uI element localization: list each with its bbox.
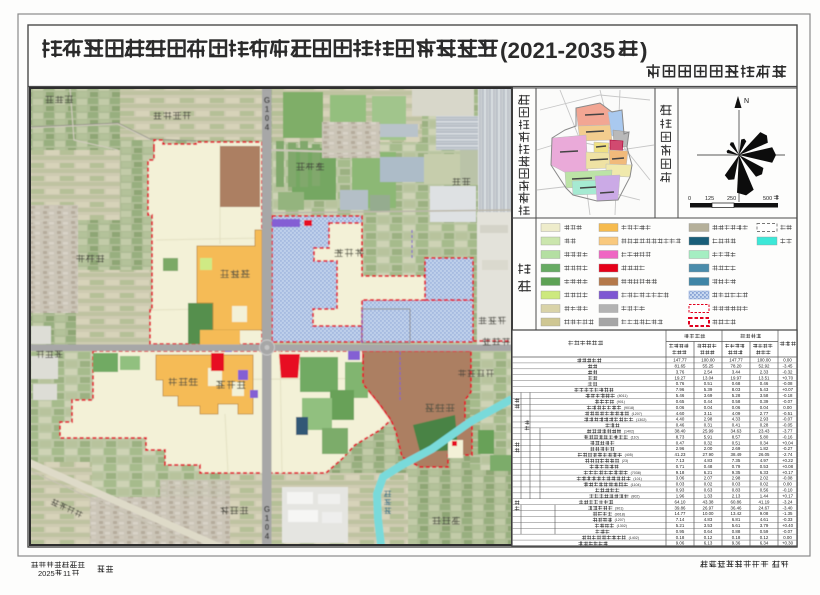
svg-text:36.46: 36.46 [731, 505, 743, 510]
svg-text:38.40: 38.40 [675, 429, 687, 434]
svg-text:0.32: 0.32 [704, 440, 713, 445]
svg-text:(802): (802) [631, 495, 639, 499]
svg-text:-0.18: -0.18 [782, 393, 793, 398]
svg-text:0.34: 0.34 [760, 440, 769, 445]
svg-text:1.44: 1.44 [760, 494, 769, 499]
svg-text:14.77: 14.77 [675, 511, 687, 516]
svg-text:3.11: 3.11 [704, 411, 713, 416]
svg-text:0.79: 0.79 [732, 464, 741, 469]
svg-text:+0.30: +0.30 [782, 541, 794, 546]
svg-text:34.63: 34.63 [731, 429, 743, 434]
svg-text:(1207): (1207) [632, 412, 642, 416]
svg-text:0.03: 0.03 [676, 482, 685, 487]
svg-text:125: 125 [705, 196, 714, 202]
svg-text:5.43: 5.43 [760, 387, 769, 392]
svg-text:0.12: 0.12 [704, 535, 713, 540]
svg-text:-0.10: -0.10 [782, 488, 793, 493]
svg-text:4.83: 4.83 [704, 517, 713, 522]
svg-text:0.28: 0.28 [760, 423, 769, 428]
svg-text:4.83: 4.83 [704, 458, 713, 463]
svg-text:1.82: 1.82 [760, 446, 769, 451]
svg-text:19.27: 19.27 [675, 375, 687, 380]
svg-text:7.13: 7.13 [676, 458, 685, 463]
svg-text:4.97: 4.97 [760, 458, 769, 463]
svg-text:+0.40: +0.40 [782, 523, 794, 528]
svg-text:0.59: 0.59 [760, 529, 769, 534]
svg-text:5.28: 5.28 [732, 393, 741, 398]
svg-text:5.80: 5.80 [760, 434, 769, 439]
svg-text:0.64: 0.64 [704, 529, 713, 534]
svg-text:2.77: 2.77 [760, 411, 769, 416]
svg-text:1.96: 1.96 [676, 494, 685, 499]
svg-text:0.39: 0.39 [760, 399, 769, 404]
svg-text:0.76: 0.76 [676, 381, 685, 386]
svg-text:-0.33: -0.33 [782, 517, 793, 522]
svg-text:39.86: 39.86 [675, 505, 687, 510]
svg-text:5.21: 5.21 [676, 523, 685, 528]
svg-text:0.48: 0.48 [704, 464, 713, 469]
svg-text:6.81: 6.81 [732, 517, 741, 522]
svg-text:0.63: 0.63 [704, 488, 713, 493]
svg-text:-0.51: -0.51 [782, 411, 793, 416]
svg-text:0.56: 0.56 [760, 488, 769, 493]
svg-text:5.39: 5.39 [704, 387, 713, 392]
svg-text:8.57: 8.57 [732, 434, 741, 439]
svg-text:2.07: 2.07 [704, 476, 713, 481]
svg-text:(110): (110) [631, 436, 639, 440]
svg-text:+0.07: +0.07 [782, 387, 794, 392]
svg-text:3.79: 3.79 [760, 523, 769, 528]
svg-text:7.35: 7.35 [732, 458, 741, 463]
svg-text:9.08: 9.08 [760, 511, 769, 516]
svg-text:100.00: 100.00 [757, 358, 771, 363]
svg-text:0.00: 0.00 [783, 482, 792, 487]
svg-text:6.21: 6.21 [704, 470, 713, 475]
svg-text:4.60: 4.60 [676, 411, 685, 416]
svg-text:0.58: 0.58 [732, 399, 741, 404]
svg-text:2025: 2025 [38, 569, 55, 578]
svg-text:0.71: 0.71 [676, 464, 685, 469]
svg-text:26.05: 26.05 [759, 452, 771, 457]
svg-text:100.00: 100.00 [701, 358, 715, 363]
svg-text:19.97: 19.97 [731, 375, 743, 380]
svg-text:55.25: 55.25 [703, 364, 715, 369]
svg-text:0.18: 0.18 [676, 535, 685, 540]
svg-text:(9018): (9018) [615, 512, 625, 516]
svg-text:0.12: 0.12 [760, 535, 769, 540]
svg-text:(1402): (1402) [629, 536, 639, 540]
svg-text:7.14: 7.14 [676, 517, 685, 522]
svg-text:81.65: 81.65 [675, 364, 687, 369]
svg-text:3.58: 3.58 [760, 393, 769, 398]
svg-text:13.51: 13.51 [759, 375, 771, 380]
svg-text:-3.77: -3.77 [782, 429, 793, 434]
svg-text:(9018): (9018) [624, 406, 634, 410]
svg-text:6.34: 6.34 [760, 541, 769, 546]
svg-text:41.19: 41.19 [759, 499, 771, 504]
svg-text:0.00: 0.00 [783, 535, 792, 540]
svg-text:-0.07: -0.07 [782, 417, 793, 422]
svg-text:5.46: 5.46 [676, 393, 685, 398]
svg-text:0.88: 0.88 [732, 529, 741, 534]
svg-text:-0.08: -0.08 [782, 381, 793, 386]
svg-text:60.86: 60.86 [731, 499, 743, 504]
svg-text:26.97: 26.97 [703, 505, 715, 510]
svg-text:52.92: 52.92 [759, 364, 771, 369]
svg-text:(1207): (1207) [615, 518, 625, 522]
svg-text:0.04: 0.04 [704, 405, 713, 410]
svg-text:0.95: 0.95 [676, 529, 685, 534]
svg-text:2.54: 2.54 [704, 369, 713, 374]
svg-text:0.02: 0.02 [760, 482, 769, 487]
svg-text:0.46: 0.46 [760, 381, 769, 386]
svg-text:+0.70: +0.70 [782, 375, 794, 380]
svg-text:64.10: 64.10 [675, 499, 687, 504]
svg-text:+0.08: +0.08 [782, 464, 794, 469]
svg-text:(23): (23) [622, 459, 628, 463]
svg-text:2.93: 2.93 [760, 417, 769, 422]
svg-text:0.41: 0.41 [732, 423, 741, 428]
svg-text:78.20: 78.20 [731, 364, 743, 369]
svg-text:3.76: 3.76 [676, 369, 685, 374]
svg-text:0.65: 0.65 [676, 399, 685, 404]
svg-text:0.44: 0.44 [704, 399, 713, 404]
svg-text:(8011): (8011) [617, 394, 627, 398]
svg-text:(7038): (7038) [631, 471, 641, 475]
svg-text:8.03: 8.03 [732, 387, 741, 392]
svg-text:-3.40: -3.40 [782, 505, 793, 510]
svg-text:(1104): (1104) [631, 483, 641, 487]
svg-text:(1402): (1402) [624, 430, 634, 434]
svg-text:0.00: 0.00 [783, 358, 792, 363]
svg-text:0.18: 0.18 [732, 535, 741, 540]
svg-text:0.03: 0.03 [732, 482, 741, 487]
svg-text:2.02: 2.02 [760, 476, 769, 481]
svg-text:0.00: 0.00 [783, 405, 792, 410]
svg-text:0.46: 0.46 [676, 423, 685, 428]
svg-text:4.09: 4.09 [732, 411, 741, 416]
svg-text:25.99: 25.99 [703, 429, 715, 434]
svg-text:9.35: 9.35 [732, 470, 741, 475]
svg-text:13.42: 13.42 [731, 511, 743, 516]
svg-text:-1.35: -1.35 [782, 511, 793, 516]
svg-text:2.98: 2.98 [732, 476, 741, 481]
svg-text:27.90: 27.90 [703, 452, 715, 457]
svg-text:-0.07: -0.07 [782, 399, 793, 404]
svg-text:250: 250 [727, 196, 736, 202]
svg-text:6.13: 6.13 [704, 541, 713, 546]
svg-text:(1302): (1302) [617, 524, 627, 528]
svg-text:3.06: 3.06 [676, 476, 685, 481]
svg-text:+0.17: +0.17 [782, 470, 794, 475]
svg-text:0.93: 0.93 [676, 488, 685, 493]
svg-text:): ) [640, 38, 648, 63]
svg-text:23.43: 23.43 [759, 429, 771, 434]
svg-text:4.33: 4.33 [732, 417, 741, 422]
svg-text:0.83: 0.83 [732, 488, 741, 493]
svg-text:-0.32: -0.32 [782, 369, 793, 374]
svg-text:+0.04: +0.04 [782, 440, 794, 445]
svg-text:4.61: 4.61 [760, 517, 769, 522]
svg-text:0.02: 0.02 [704, 482, 713, 487]
svg-text:-3.45: -3.45 [782, 364, 793, 369]
svg-text:500: 500 [763, 196, 772, 202]
svg-text:(901): (901) [617, 400, 625, 404]
svg-text:3.69: 3.69 [704, 393, 713, 398]
svg-text:-0.08: -0.08 [782, 476, 793, 481]
svg-text:-0.07: -0.07 [782, 529, 793, 534]
svg-text:7.96: 7.96 [676, 387, 685, 392]
svg-text:11: 11 [63, 569, 71, 578]
svg-text:24.67: 24.67 [759, 505, 771, 510]
svg-text:147.77: 147.77 [673, 358, 687, 363]
svg-text:0.51: 0.51 [704, 381, 713, 386]
svg-text:0.04: 0.04 [760, 405, 769, 410]
svg-text:-0.05: -0.05 [782, 423, 793, 428]
svg-text:0.06: 0.06 [732, 405, 741, 410]
svg-text:(901): (901) [615, 506, 623, 510]
svg-text:2.00: 2.00 [704, 446, 713, 451]
svg-text:3.44: 3.44 [732, 369, 741, 374]
svg-text:0.51: 0.51 [732, 440, 741, 445]
svg-text:2.69: 2.69 [732, 446, 741, 451]
svg-text:+0.22: +0.22 [782, 458, 794, 463]
svg-text:10.00: 10.00 [703, 511, 715, 516]
svg-text:2.33: 2.33 [760, 369, 769, 374]
svg-text:-0.16: -0.16 [782, 434, 793, 439]
svg-text:N: N [744, 98, 749, 105]
svg-text:0.47: 0.47 [676, 440, 685, 445]
svg-text:(101): (101) [633, 477, 641, 481]
svg-text:0.06: 0.06 [676, 405, 685, 410]
svg-text:9.36: 9.36 [732, 541, 741, 546]
svg-text:41.23: 41.23 [675, 452, 687, 457]
svg-text:38.49: 38.49 [731, 452, 743, 457]
svg-text:13.04: 13.04 [703, 375, 715, 380]
svg-text:6.33: 6.33 [760, 470, 769, 475]
svg-text:0: 0 [688, 196, 691, 202]
svg-text:(405): (405) [625, 453, 633, 457]
svg-text:5.61: 5.61 [732, 523, 741, 528]
svg-text:4.40: 4.40 [676, 417, 685, 422]
svg-text:9.06: 9.06 [676, 541, 685, 546]
svg-text:43.38: 43.38 [703, 499, 715, 504]
svg-text:2.13: 2.13 [732, 494, 741, 499]
svg-text:-3.24: -3.24 [782, 499, 793, 504]
svg-text:0.53: 0.53 [760, 464, 769, 469]
svg-text:9.18: 9.18 [676, 470, 685, 475]
svg-text:2.96: 2.96 [676, 446, 685, 451]
svg-text:(1302): (1302) [636, 418, 646, 422]
svg-text:3.53: 3.53 [704, 523, 713, 528]
svg-text:8.73: 8.73 [676, 434, 685, 439]
svg-text:0.31: 0.31 [704, 423, 713, 428]
svg-text:2.98: 2.98 [704, 417, 713, 422]
svg-text:1.33: 1.33 [704, 494, 713, 499]
svg-text:(2021-2035: (2021-2035 [500, 38, 615, 63]
svg-text:-2.74: -2.74 [782, 452, 793, 457]
svg-text:147.77: 147.77 [729, 358, 743, 363]
svg-text:5.91: 5.91 [704, 434, 713, 439]
svg-text:0.68: 0.68 [732, 381, 741, 386]
svg-text:-0.27: -0.27 [782, 446, 793, 451]
svg-text:+0.17: +0.17 [782, 494, 794, 499]
